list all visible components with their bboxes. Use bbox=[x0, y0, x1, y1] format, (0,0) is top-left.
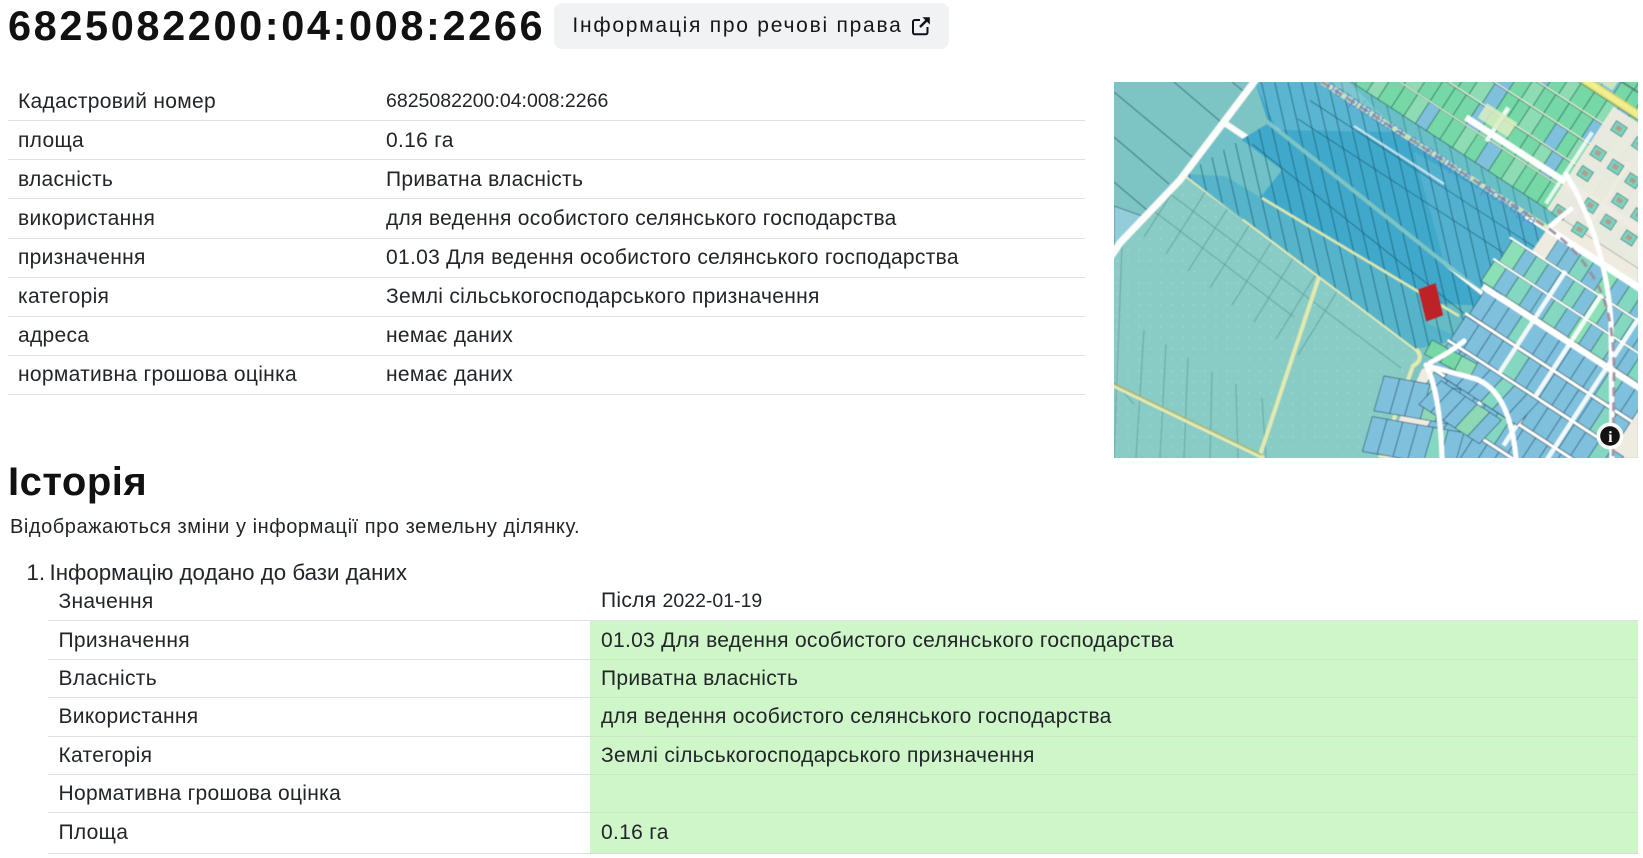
svg-text:i: i bbox=[1608, 429, 1613, 446]
